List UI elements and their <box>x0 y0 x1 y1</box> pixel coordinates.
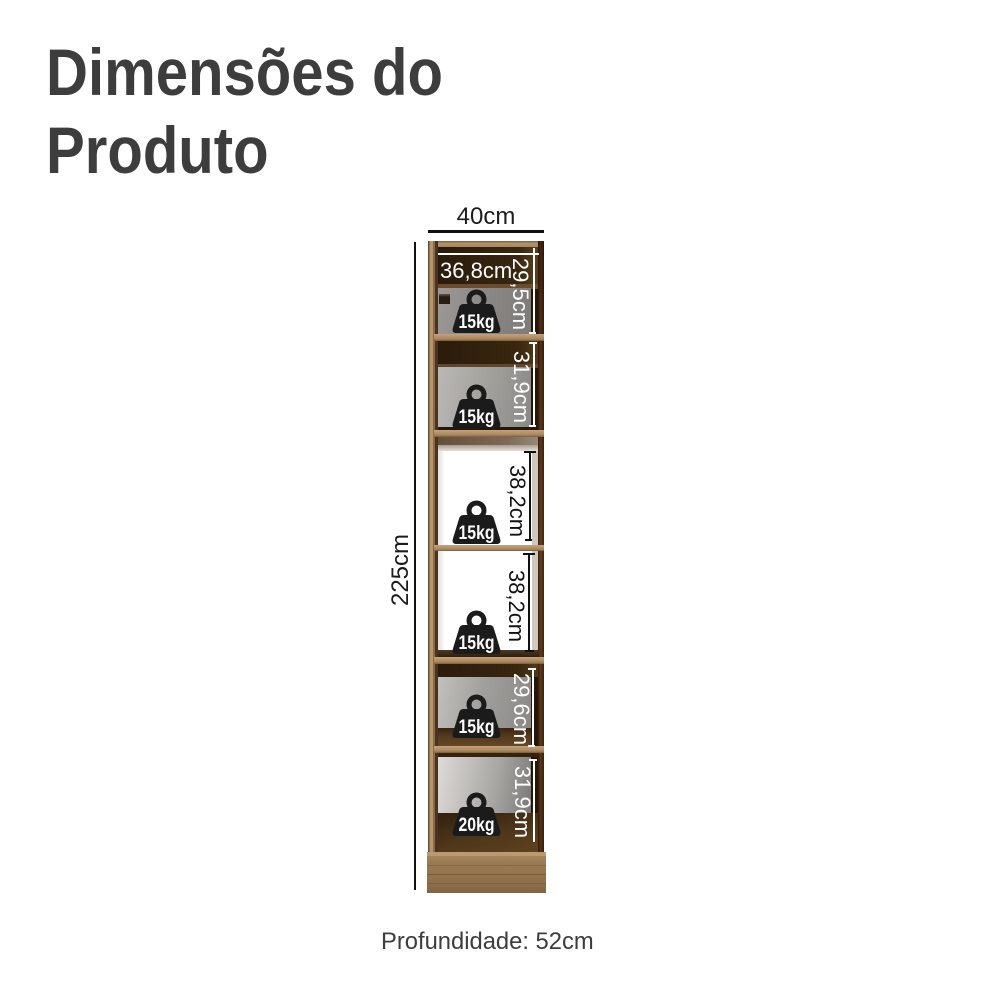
svg-text:15kg: 15kg <box>458 311 494 333</box>
svg-text:15kg: 15kg <box>458 522 494 544</box>
svg-text:15kg: 15kg <box>458 632 494 654</box>
svg-text:15kg: 15kg <box>458 406 494 428</box>
svg-text:15kg: 15kg <box>458 716 494 738</box>
svg-text:20kg: 20kg <box>458 814 494 836</box>
